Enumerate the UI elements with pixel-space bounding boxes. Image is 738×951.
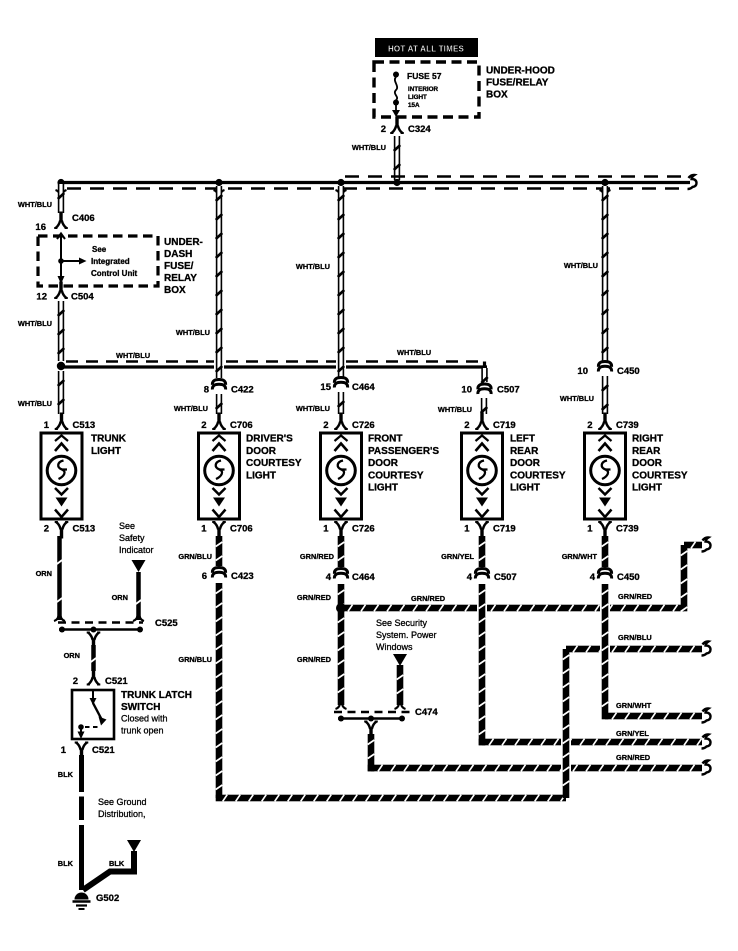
svg-text:BLK: BLK [109, 859, 125, 868]
svg-text:4: 4 [467, 572, 473, 583]
svg-text:Windows: Windows [376, 642, 413, 652]
svg-text:GRN/YEL: GRN/YEL [441, 552, 474, 561]
svg-text:1: 1 [201, 524, 207, 535]
svg-text:2: 2 [201, 420, 206, 431]
svg-text:Integrated: Integrated [91, 257, 130, 266]
svg-text:PASSENGER'S: PASSENGER'S [368, 446, 439, 457]
svg-text:TRUNK LATCH: TRUNK LATCH [121, 690, 192, 701]
svg-text:16: 16 [35, 222, 46, 233]
svg-text:10: 10 [461, 385, 472, 396]
svg-text:FUSE 57: FUSE 57 [407, 71, 442, 81]
svg-text:C406: C406 [72, 213, 95, 224]
svg-text:GRN/BLU: GRN/BLU [178, 552, 212, 561]
svg-text:LIGHT: LIGHT [632, 483, 662, 494]
svg-text:DRIVER'S: DRIVER'S [246, 434, 293, 445]
svg-text:C706: C706 [230, 420, 253, 431]
svg-text:GRN/WHT: GRN/WHT [562, 552, 598, 561]
svg-text:GRN/YEL: GRN/YEL [616, 729, 649, 738]
svg-text:GRN/RED: GRN/RED [297, 593, 332, 602]
svg-text:C324: C324 [408, 124, 431, 135]
svg-text:LIGHT: LIGHT [408, 94, 427, 101]
svg-text:TRUNK: TRUNK [91, 434, 127, 445]
svg-text:Control Unit: Control Unit [91, 269, 138, 278]
svg-text:G502: G502 [96, 893, 119, 904]
svg-text:Safety: Safety [119, 533, 145, 543]
svg-text:Closed with: Closed with [121, 714, 168, 724]
svg-text:1: 1 [323, 524, 329, 535]
svg-text:C719: C719 [493, 524, 516, 535]
svg-text:C706: C706 [230, 524, 253, 535]
svg-text:System. Power: System. Power [376, 630, 437, 640]
svg-text:2: 2 [73, 676, 78, 687]
svg-text:4: 4 [590, 572, 596, 583]
svg-text:WHT/BLU: WHT/BLU [397, 348, 431, 357]
svg-text:GRN/RED: GRN/RED [618, 592, 653, 601]
svg-text:RELAY: RELAY [164, 273, 197, 284]
svg-text:2: 2 [587, 420, 592, 431]
svg-text:1: 1 [587, 524, 593, 535]
svg-text:See Ground: See Ground [98, 797, 147, 807]
svg-text:C513: C513 [73, 524, 96, 535]
svg-text:INTERIOR: INTERIOR [408, 86, 439, 93]
svg-text:See: See [119, 521, 135, 531]
svg-text:C450: C450 [617, 572, 640, 583]
svg-text:WHT/BLU: WHT/BLU [438, 405, 472, 414]
svg-text:WHT/BLU: WHT/BLU [176, 328, 210, 337]
svg-text:2: 2 [381, 124, 386, 135]
svg-text:UNDER-HOOD: UNDER-HOOD [486, 66, 555, 77]
svg-text:DOOR: DOOR [246, 446, 277, 457]
svg-text:UNDER-: UNDER- [164, 237, 203, 248]
svg-text:DASH: DASH [164, 249, 192, 260]
svg-text:LEFT: LEFT [510, 434, 535, 445]
svg-text:GRN/RED: GRN/RED [411, 594, 446, 603]
svg-text:15A: 15A [408, 102, 420, 109]
svg-text:2: 2 [464, 420, 469, 431]
svg-text:15: 15 [320, 382, 331, 393]
svg-text:C423: C423 [231, 571, 254, 582]
svg-text:DOOR: DOOR [510, 458, 541, 469]
svg-text:GRN/WHT: GRN/WHT [616, 701, 652, 710]
svg-text:GRN/BLU: GRN/BLU [178, 655, 212, 664]
svg-text:HOT AT ALL TIMES: HOT AT ALL TIMES [388, 45, 465, 54]
svg-text:C521: C521 [92, 745, 115, 756]
svg-text:BLK: BLK [58, 859, 74, 868]
svg-text:10: 10 [577, 366, 588, 377]
svg-text:C525: C525 [155, 618, 178, 629]
svg-text:C474: C474 [415, 707, 438, 718]
svg-text:WHT/BLU: WHT/BLU [564, 261, 598, 270]
svg-text:COURTESY: COURTESY [368, 470, 424, 481]
svg-text:1: 1 [464, 524, 470, 535]
svg-text:BOX: BOX [486, 90, 508, 101]
svg-text:DOOR: DOOR [368, 458, 399, 469]
svg-text:WHT/BLU: WHT/BLU [174, 404, 208, 413]
svg-text:WHT/BLU: WHT/BLU [18, 200, 52, 209]
svg-text:FUSE/: FUSE/ [164, 261, 194, 272]
svg-text:WHT/BLU: WHT/BLU [352, 143, 386, 152]
svg-text:GRN/RED: GRN/RED [616, 753, 651, 762]
svg-text:WHT/BLU: WHT/BLU [296, 404, 330, 413]
svg-text:RIGHT: RIGHT [632, 434, 663, 445]
svg-text:WHT/BLU: WHT/BLU [560, 394, 594, 403]
svg-text:C504: C504 [71, 292, 94, 303]
svg-text:C450: C450 [617, 366, 640, 377]
svg-text:1: 1 [61, 745, 67, 756]
svg-text:1: 1 [44, 420, 50, 431]
svg-text:ORN: ORN [36, 569, 52, 578]
svg-text:GRN/RED: GRN/RED [300, 552, 335, 561]
svg-text:BLK: BLK [58, 770, 74, 779]
svg-text:C739: C739 [616, 524, 639, 535]
svg-text:FUSE/RELAY: FUSE/RELAY [486, 78, 549, 89]
svg-text:See Security: See Security [376, 618, 428, 628]
svg-text:WHT/BLU: WHT/BLU [18, 319, 52, 328]
svg-text:DOOR: DOOR [632, 458, 663, 469]
svg-text:C719: C719 [493, 420, 516, 431]
svg-text:BOX: BOX [164, 285, 186, 296]
svg-text:C507: C507 [497, 385, 520, 396]
svg-text:6: 6 [202, 571, 207, 582]
svg-text:GRN/RED: GRN/RED [297, 655, 332, 664]
svg-text:WHT/BLU: WHT/BLU [296, 262, 330, 271]
svg-text:WHT/BLU: WHT/BLU [18, 399, 52, 408]
svg-text:LIGHT: LIGHT [510, 483, 540, 494]
svg-text:C726: C726 [352, 524, 375, 535]
svg-text:C464: C464 [352, 382, 375, 393]
svg-text:See: See [92, 245, 107, 254]
svg-text:trunk open: trunk open [121, 726, 164, 736]
svg-text:REAR: REAR [510, 446, 539, 457]
svg-text:8: 8 [204, 385, 209, 396]
svg-text:2: 2 [323, 420, 328, 431]
svg-text:12: 12 [36, 292, 47, 303]
svg-text:WHT/BLU: WHT/BLU [116, 351, 150, 360]
svg-text:Indicator: Indicator [119, 545, 154, 555]
svg-text:C422: C422 [231, 385, 254, 396]
svg-text:SWITCH: SWITCH [121, 702, 160, 713]
svg-text:C521: C521 [105, 676, 128, 687]
svg-text:COURTESY: COURTESY [246, 458, 302, 469]
svg-text:C464: C464 [352, 572, 375, 583]
svg-text:LIGHT: LIGHT [246, 470, 276, 481]
svg-text:C513: C513 [73, 420, 96, 431]
svg-text:GRN/BLU: GRN/BLU [618, 633, 652, 642]
svg-text:Distribution,: Distribution, [98, 809, 146, 819]
svg-text:C739: C739 [616, 420, 639, 431]
svg-text:REAR: REAR [632, 446, 661, 457]
svg-text:FRONT: FRONT [368, 434, 402, 445]
svg-text:ORN: ORN [64, 651, 80, 660]
svg-text:COURTESY: COURTESY [632, 470, 688, 481]
svg-text:COURTESY: COURTESY [510, 470, 566, 481]
svg-text:ORN: ORN [112, 593, 128, 602]
svg-text:LIGHT: LIGHT [368, 483, 398, 494]
svg-text:C507: C507 [494, 572, 517, 583]
svg-text:2: 2 [44, 524, 49, 535]
svg-text:4: 4 [326, 572, 332, 583]
svg-text:LIGHT: LIGHT [91, 446, 121, 457]
svg-text:C726: C726 [352, 420, 375, 431]
